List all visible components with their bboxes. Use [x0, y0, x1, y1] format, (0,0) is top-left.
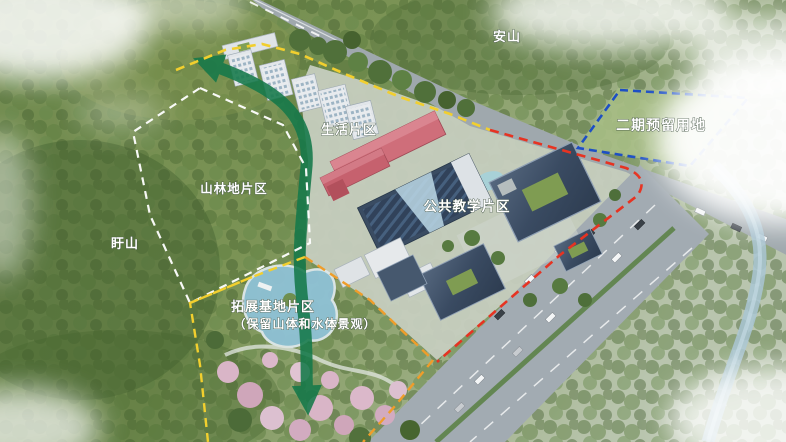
masterplan-rendering: 安山 盱山 二期预留用地 生活片区 山林地片区 公共教学片区 拓展基地片区 （保… [0, 0, 786, 442]
label-forest-area: 山林地片区 [200, 181, 268, 196]
site-plan-canvas: 安山 盱山 二期预留用地 生活片区 山林地片区 公共教学片区 拓展基地片区 （保… [0, 0, 786, 442]
label-phase2-reserved-land: 二期预留用地 [616, 117, 706, 134]
label-anshan-mountain: 安山 [493, 29, 521, 45]
label-teaching-area: 公共教学片区 [424, 198, 511, 215]
label-living-area: 生活片区 [321, 122, 377, 138]
label-expansion-area: 拓展基地片区 [231, 299, 315, 315]
label-expansion-note: （保留山体和水体景观） [233, 316, 376, 331]
label-xushan-mountain: 盱山 [111, 236, 139, 252]
